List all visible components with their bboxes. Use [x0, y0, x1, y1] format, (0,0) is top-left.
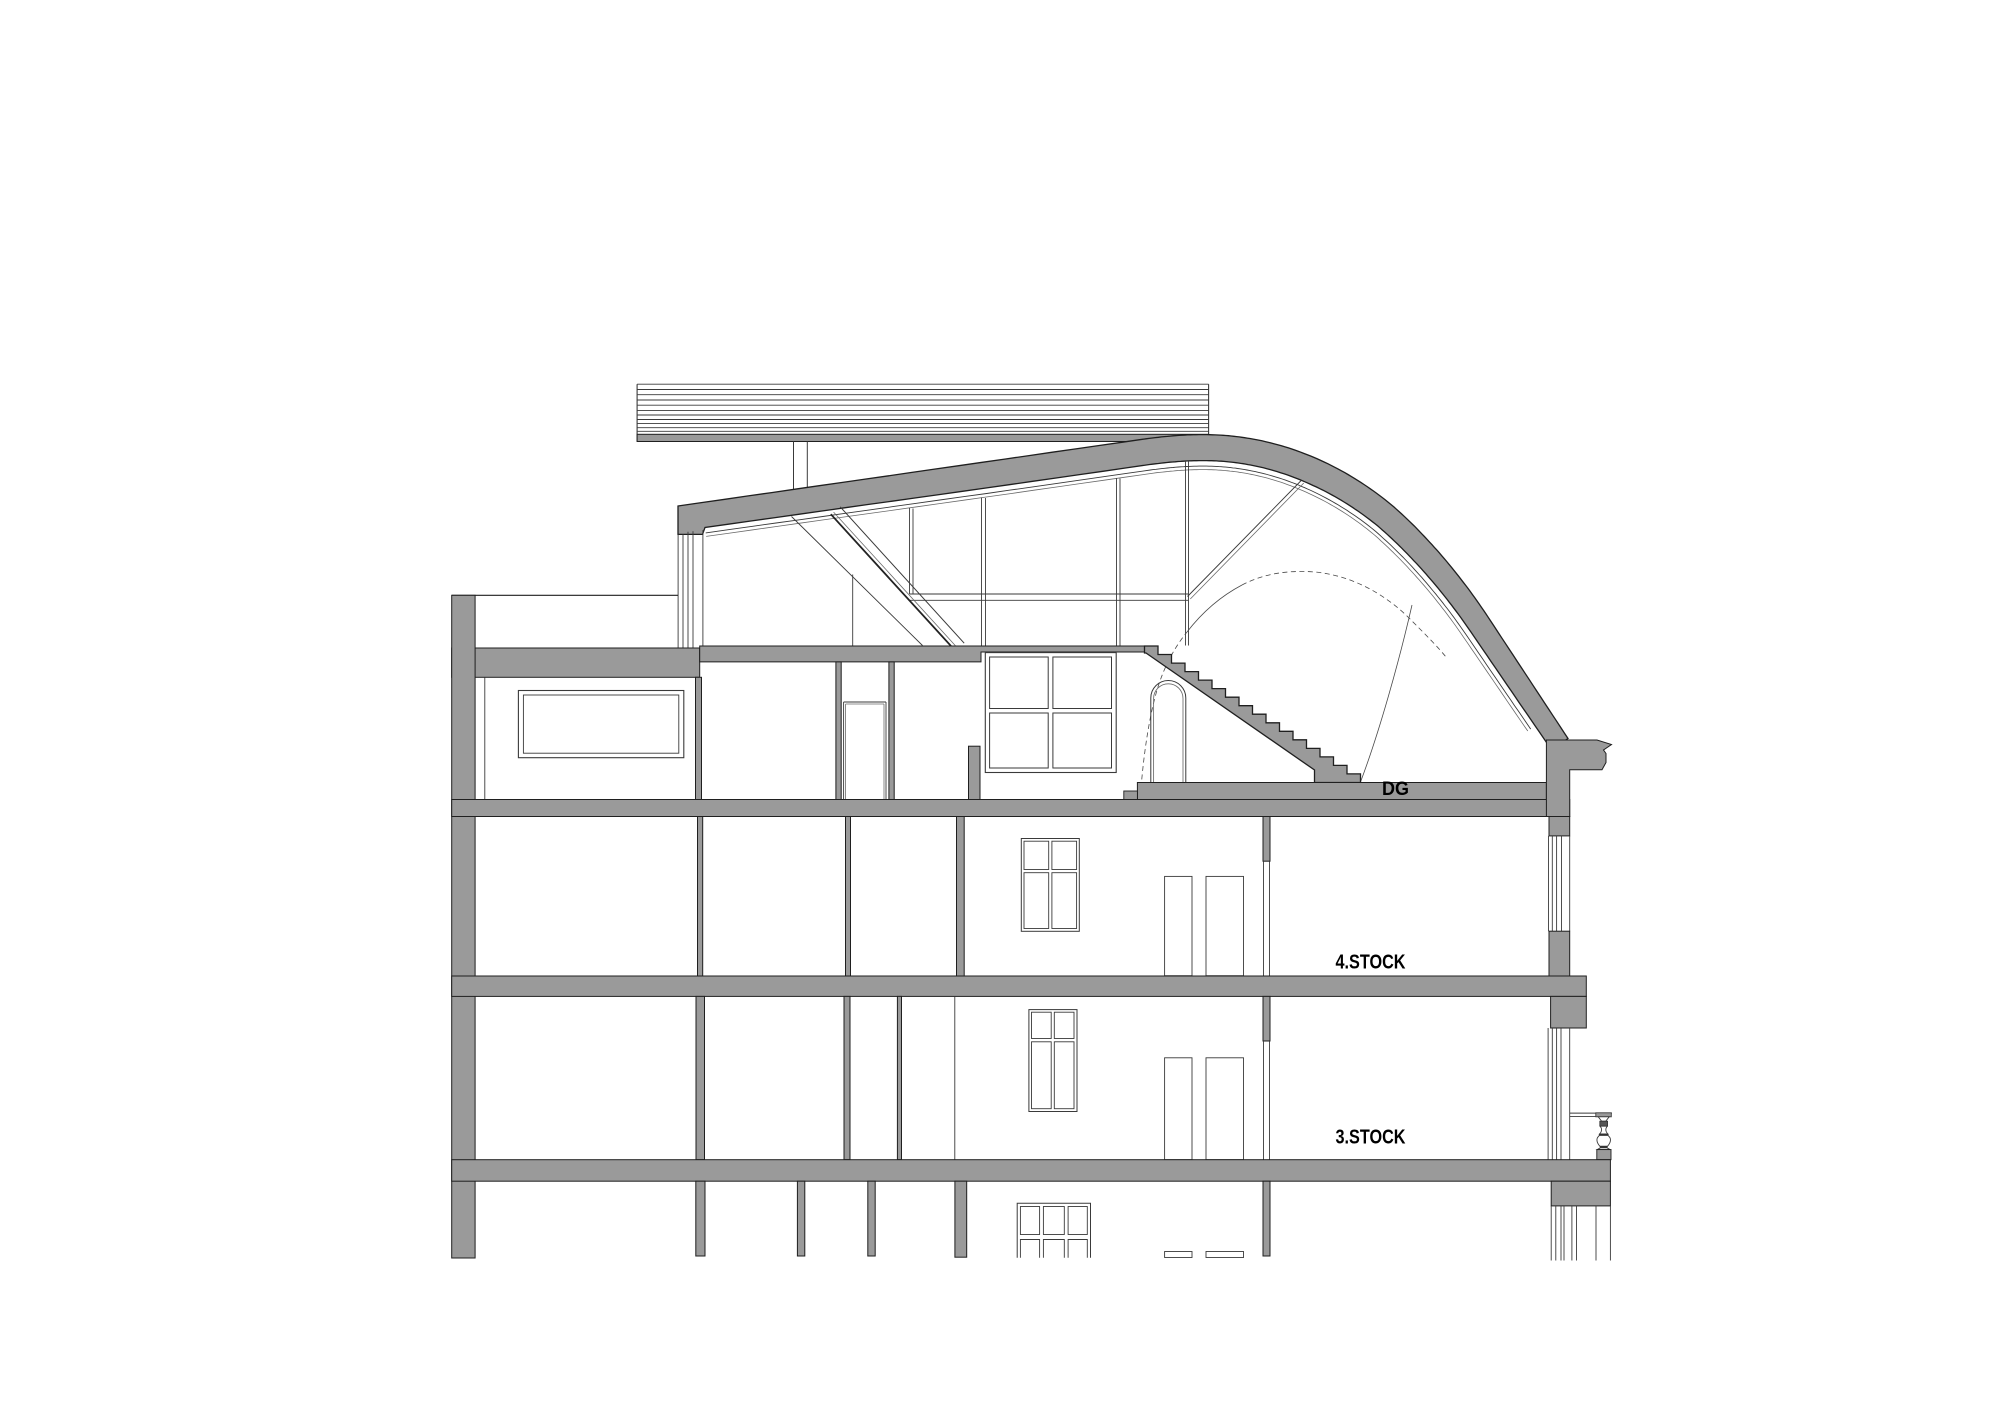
- svg-text:DG: DG: [1382, 778, 1409, 800]
- svg-text:4.STOCK: 4.STOCK: [1336, 952, 1406, 974]
- svg-text:3.STOCK: 3.STOCK: [1336, 1127, 1406, 1149]
